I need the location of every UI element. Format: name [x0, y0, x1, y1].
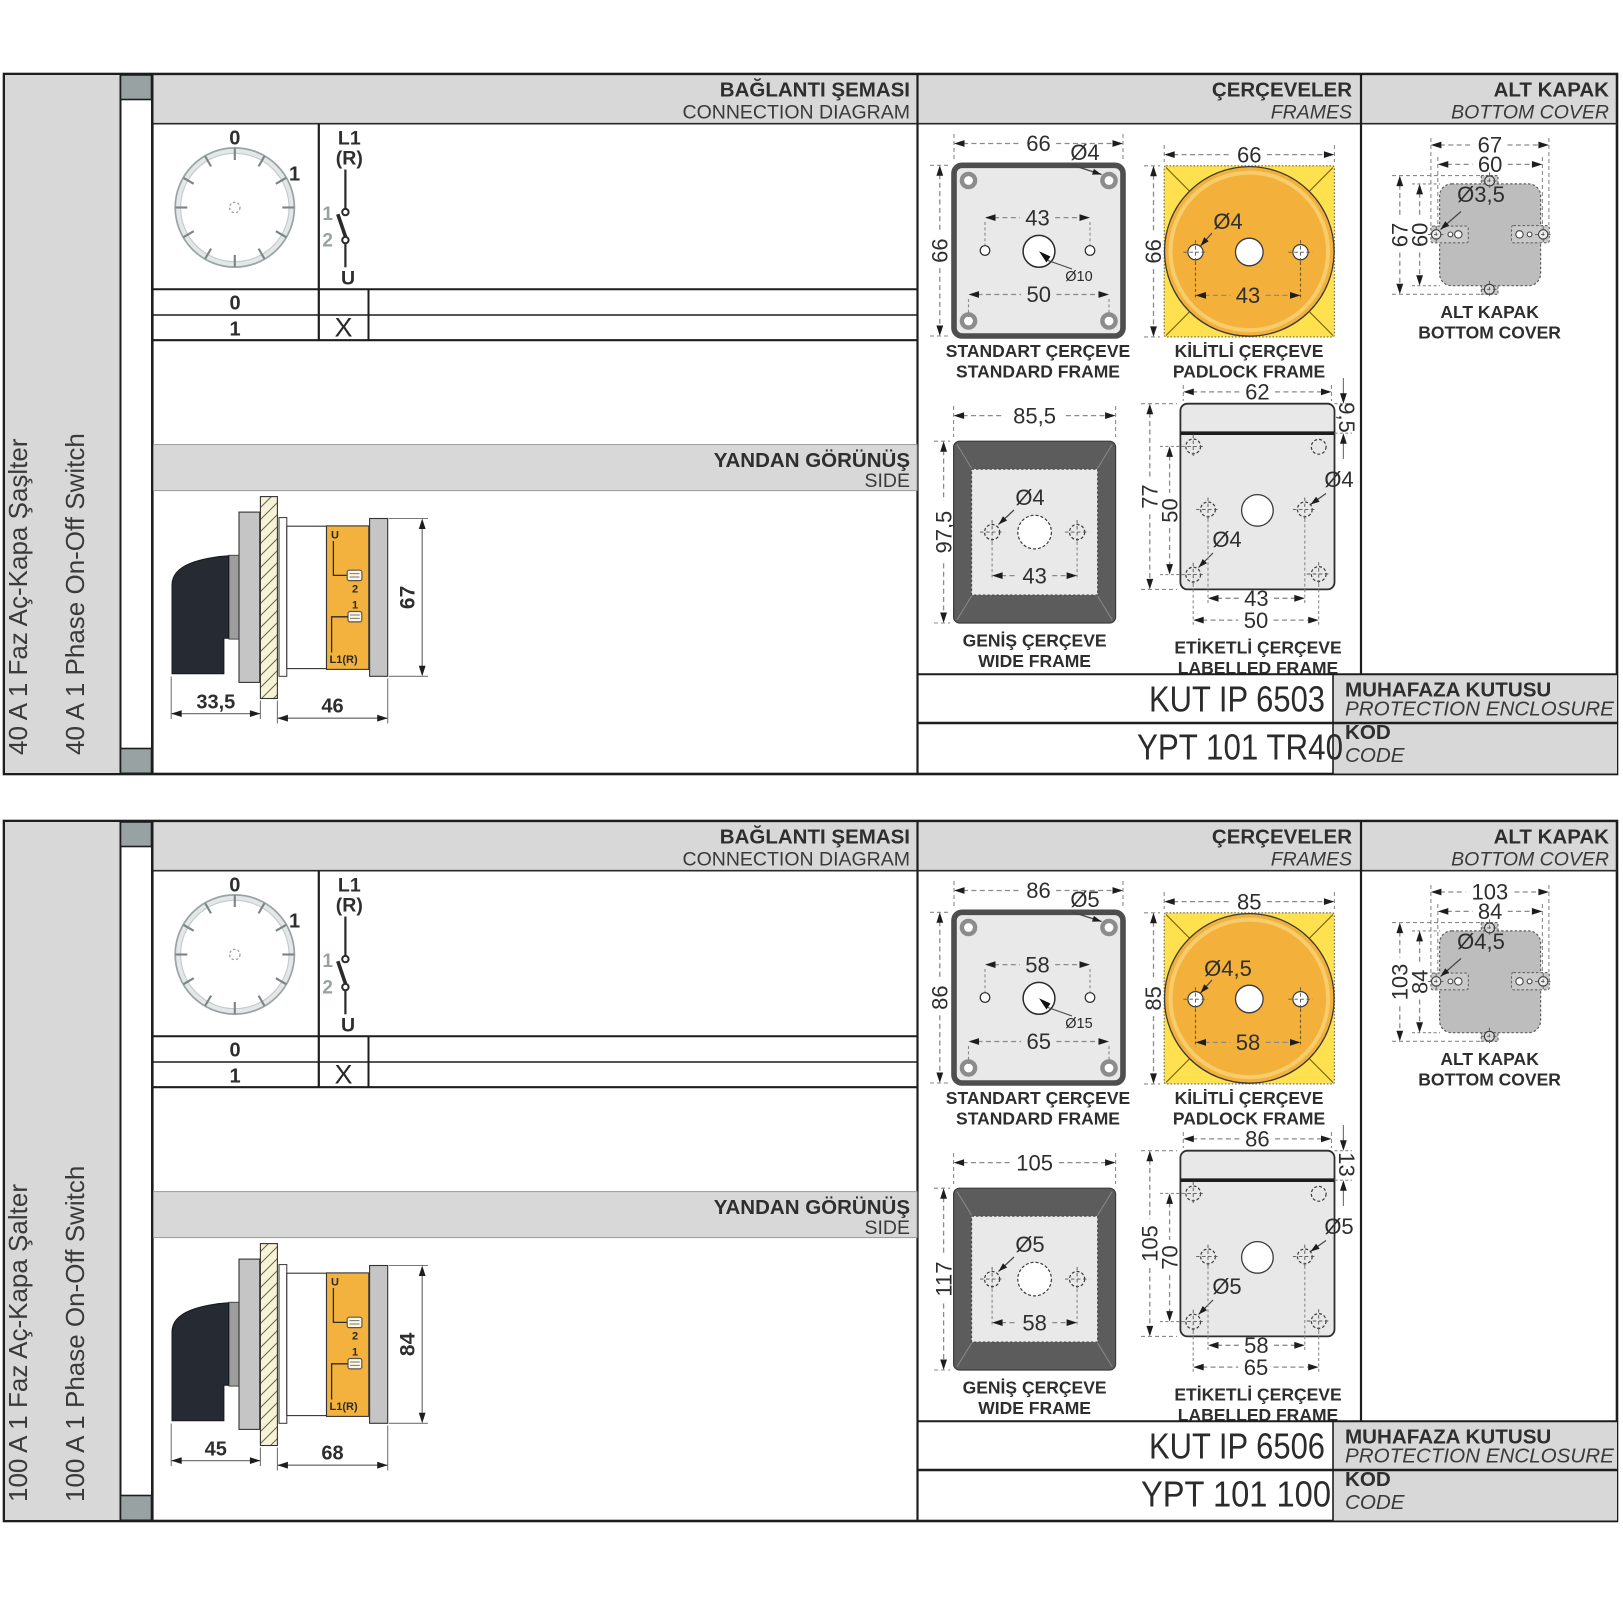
svg-text:2: 2: [352, 584, 358, 596]
svg-text:PROTECTION ENCLOSURE: PROTECTION ENCLOSURE: [1345, 698, 1614, 721]
svg-text:L1: L1: [338, 874, 361, 896]
svg-text:58: 58: [1236, 1030, 1260, 1055]
svg-text:40 A 1 Phase On-Off Switch: 40 A 1 Phase On-Off Switch: [60, 433, 90, 755]
svg-text:86: 86: [928, 985, 953, 1009]
svg-text:1: 1: [229, 318, 240, 340]
svg-text:U: U: [331, 1277, 339, 1289]
svg-text:67: 67: [397, 586, 420, 609]
svg-text:KİLİTLİ ÇERÇEVE: KİLİTLİ ÇERÇEVE: [1175, 1088, 1324, 1108]
svg-text:SIDE: SIDE: [864, 1217, 910, 1239]
svg-text:U: U: [331, 530, 339, 542]
svg-text:86: 86: [1026, 878, 1050, 903]
svg-text:ALT KAPAK: ALT KAPAK: [1494, 79, 1610, 102]
svg-text:L1: L1: [338, 127, 361, 149]
svg-text:58: 58: [1022, 1310, 1046, 1335]
svg-text:1: 1: [322, 204, 333, 225]
svg-text:ÇERÇEVELER: ÇERÇEVELER: [1212, 826, 1352, 849]
svg-text:68: 68: [321, 1443, 343, 1465]
svg-text:CONNECTION DIAGRAM: CONNECTION DIAGRAM: [682, 848, 910, 870]
svg-text:WIDE FRAME: WIDE FRAME: [978, 651, 1091, 671]
svg-text:66: 66: [1141, 239, 1166, 263]
svg-text:84: 84: [1407, 970, 1432, 994]
svg-text:86: 86: [1245, 1127, 1269, 1152]
svg-text:66: 66: [928, 238, 953, 262]
svg-text:PADLOCK FRAME: PADLOCK FRAME: [1173, 362, 1325, 382]
svg-text:PROTECTION ENCLOSURE: PROTECTION ENCLOSURE: [1345, 1445, 1614, 1468]
svg-text:L1(R): L1(R): [330, 1401, 358, 1413]
svg-text:BAĞLANTI ŞEMASI: BAĞLANTI ŞEMASI: [720, 825, 910, 849]
svg-text:BOTTOM COVER: BOTTOM COVER: [1418, 1070, 1561, 1090]
svg-text:0: 0: [229, 128, 240, 150]
svg-text:BAĞLANTI ŞEMASI: BAĞLANTI ŞEMASI: [720, 78, 910, 102]
svg-text:85: 85: [1141, 986, 1166, 1010]
svg-text:60: 60: [1407, 223, 1432, 247]
svg-text:65: 65: [1244, 1355, 1268, 1380]
svg-text:CONNECTION DIAGRAM: CONNECTION DIAGRAM: [682, 101, 910, 123]
svg-text:50: 50: [1157, 498, 1182, 522]
svg-text:9,5: 9,5: [1334, 402, 1359, 433]
svg-text:84: 84: [397, 1332, 420, 1356]
svg-text:WIDE FRAME: WIDE FRAME: [978, 1398, 1091, 1418]
svg-text:Ø4: Ø4: [1015, 485, 1044, 510]
svg-text:STANDART ÇERÇEVE: STANDART ÇERÇEVE: [946, 341, 1130, 361]
svg-text:BOTTOM COVER: BOTTOM COVER: [1451, 101, 1609, 123]
svg-text:117: 117: [931, 1262, 956, 1297]
svg-text:43: 43: [1025, 205, 1049, 230]
svg-text:KİLİTLİ ÇERÇEVE: KİLİTLİ ÇERÇEVE: [1175, 341, 1324, 361]
svg-text:Ø5: Ø5: [1015, 1232, 1044, 1257]
svg-text:BOTTOM COVER: BOTTOM COVER: [1418, 323, 1561, 343]
svg-text:Ø4: Ø4: [1213, 209, 1242, 234]
svg-text:ETİKETLİ ÇERÇEVE: ETİKETLİ ÇERÇEVE: [1174, 1385, 1341, 1405]
svg-text:STANDARD FRAME: STANDARD FRAME: [956, 362, 1120, 382]
svg-text:FRAMES: FRAMES: [1271, 848, 1352, 870]
svg-text:ÇERÇEVELER: ÇERÇEVELER: [1212, 79, 1352, 102]
svg-text:0: 0: [229, 1040, 240, 1062]
svg-text:66: 66: [1026, 131, 1050, 156]
svg-text:66: 66: [1237, 142, 1261, 167]
svg-text:85: 85: [1237, 889, 1261, 914]
svg-text:GENİŞ ÇERÇEVE: GENİŞ ÇERÇEVE: [963, 1378, 1107, 1398]
svg-text:85,5: 85,5: [1013, 403, 1056, 428]
svg-text:SIDE: SIDE: [864, 470, 910, 492]
svg-text:1: 1: [289, 911, 300, 933]
svg-text:33,5: 33,5: [196, 692, 235, 714]
svg-text:84: 84: [1478, 899, 1502, 924]
svg-text:Ø10: Ø10: [1065, 269, 1092, 285]
svg-text:1: 1: [229, 1065, 240, 1087]
svg-text:40 A 1 Faz Aç-Kapa Şaşlter: 40 A 1 Faz Aç-Kapa Şaşlter: [3, 438, 33, 755]
svg-text:(R): (R): [336, 895, 363, 917]
svg-text:62: 62: [1245, 380, 1269, 405]
svg-text:1: 1: [352, 1347, 358, 1359]
svg-text:Ø4: Ø4: [1324, 467, 1353, 492]
svg-text:BOTTOM COVER: BOTTOM COVER: [1451, 848, 1609, 870]
svg-text:YANDAN GÖRÜNÜŞ: YANDAN GÖRÜNÜŞ: [714, 1196, 910, 1219]
svg-text:YPT 101 100: YPT 101 100: [1141, 1474, 1331, 1515]
svg-text:X: X: [334, 1060, 352, 1090]
svg-text:ALT KAPAK: ALT KAPAK: [1440, 302, 1539, 322]
svg-text:Ø4,5: Ø4,5: [1204, 956, 1252, 981]
svg-text:Ø15: Ø15: [1065, 1016, 1092, 1032]
svg-text:43: 43: [1022, 563, 1046, 588]
svg-text:Ø3,5: Ø3,5: [1457, 182, 1505, 207]
svg-text:Ø4: Ø4: [1212, 527, 1241, 552]
svg-text:(R): (R): [336, 148, 363, 170]
svg-text:Ø5: Ø5: [1070, 887, 1099, 912]
svg-text:CODE: CODE: [1345, 1491, 1405, 1514]
svg-text:43: 43: [1236, 283, 1260, 308]
svg-text:0: 0: [229, 875, 240, 897]
svg-text:1: 1: [289, 164, 300, 186]
svg-text:KUT IP 6503: KUT IP 6503: [1149, 679, 1325, 720]
svg-text:Ø5: Ø5: [1212, 1274, 1241, 1299]
svg-text:1: 1: [352, 600, 358, 612]
svg-text:KOD: KOD: [1345, 1468, 1391, 1491]
svg-text:2: 2: [352, 1331, 358, 1343]
svg-text:70: 70: [1157, 1245, 1182, 1269]
svg-text:X: X: [334, 313, 352, 343]
svg-text:STANDARD FRAME: STANDARD FRAME: [956, 1109, 1120, 1129]
svg-text:100 A 1 Phase On-Off Switch: 100 A 1 Phase On-Off Switch: [60, 1166, 90, 1502]
svg-text:ALT KAPAK: ALT KAPAK: [1494, 826, 1610, 849]
svg-text:50: 50: [1027, 282, 1051, 307]
svg-text:L1(R): L1(R): [330, 654, 358, 666]
svg-text:97,5: 97,5: [931, 511, 956, 554]
svg-text:0: 0: [229, 293, 240, 315]
svg-text:STANDART ÇERÇEVE: STANDART ÇERÇEVE: [946, 1088, 1130, 1108]
svg-text:Ø4,5: Ø4,5: [1457, 929, 1505, 954]
svg-text:1: 1: [322, 951, 333, 972]
svg-text:46: 46: [321, 696, 343, 718]
svg-text:2: 2: [322, 978, 333, 999]
svg-text:CODE: CODE: [1345, 744, 1405, 767]
svg-text:Ø5: Ø5: [1324, 1214, 1353, 1239]
svg-text:45: 45: [205, 1439, 227, 1461]
svg-text:U: U: [341, 1015, 355, 1037]
svg-text:105: 105: [1016, 1150, 1053, 1175]
svg-text:58: 58: [1025, 952, 1049, 977]
svg-text:100 A 1 Faz Aç-Kapa Şalter: 100 A 1 Faz Aç-Kapa Şalter: [3, 1184, 33, 1502]
svg-text:Ø4: Ø4: [1070, 140, 1099, 165]
svg-text:13: 13: [1334, 1152, 1359, 1176]
svg-text:ALT KAPAK: ALT KAPAK: [1440, 1049, 1539, 1069]
svg-text:60: 60: [1478, 152, 1502, 177]
svg-text:50: 50: [1244, 608, 1268, 633]
svg-text:PADLOCK FRAME: PADLOCK FRAME: [1173, 1109, 1325, 1129]
svg-text:ETİKETLİ ÇERÇEVE: ETİKETLİ ÇERÇEVE: [1174, 638, 1341, 658]
svg-text:2: 2: [322, 231, 333, 252]
svg-text:GENİŞ ÇERÇEVE: GENİŞ ÇERÇEVE: [963, 631, 1107, 651]
svg-text:KOD: KOD: [1345, 721, 1391, 744]
svg-text:FRAMES: FRAMES: [1271, 101, 1352, 123]
svg-text:KUT IP 6506: KUT IP 6506: [1149, 1426, 1325, 1467]
svg-text:YPT 101 TR40: YPT 101 TR40: [1137, 727, 1343, 768]
svg-text:65: 65: [1027, 1029, 1051, 1054]
svg-text:YANDAN GÖRÜNÜŞ: YANDAN GÖRÜNÜŞ: [714, 449, 910, 472]
svg-text:U: U: [341, 268, 355, 290]
